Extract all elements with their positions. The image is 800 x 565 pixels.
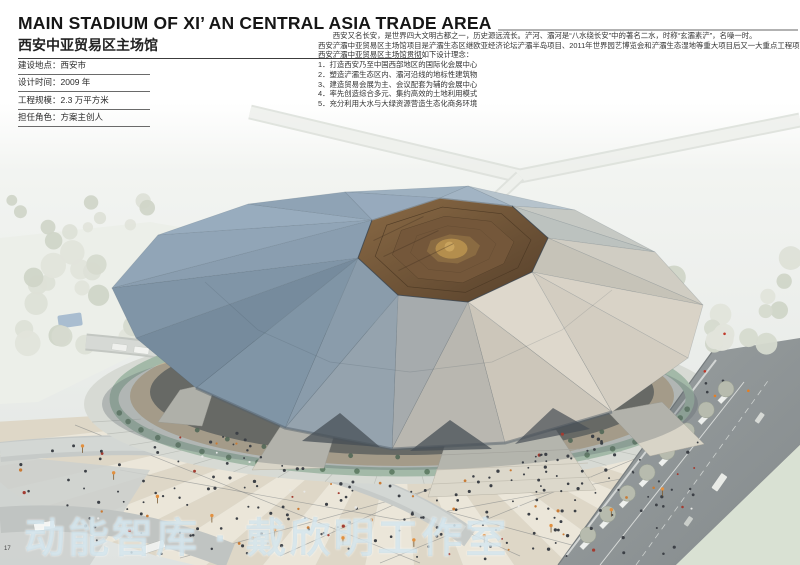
description-line: 西安又名长安，是世界四大文明古都之一，历史源远流长。浐河、灞河是“八水绕长安”中… — [318, 31, 798, 41]
info-value: 2009 年 — [61, 77, 91, 87]
watermark: 动能智库 · 戴欣明工作室 — [24, 504, 509, 564]
info-separator: ： — [52, 95, 61, 105]
info-label: 担任角色 — [18, 112, 52, 122]
description-line: 1．打造西安乃至中国西部地区的国际化会展中心 — [318, 60, 798, 70]
project-description: 西安又名长安，是世界四大文明古都之一，历史源远流长。浐河、灞河是“八水绕长安”中… — [318, 31, 798, 109]
info-separator: ： — [52, 112, 61, 122]
info-value: 2.3 万平方米 — [61, 95, 109, 105]
info-value: 西安市 — [61, 60, 87, 70]
info-label: 设计时间 — [18, 77, 52, 87]
info-row-design-time: 设计时间：2009 年 — [18, 75, 150, 93]
project-info: 建设地点：西安市 设计时间：2009 年 工程规模：2.3 万平方米 担任角色：… — [18, 57, 150, 127]
portfolio-page: MAIN STADIUM OF XI’ AN CENTRAL ASIA TRAD… — [0, 0, 800, 565]
description-line: 5．充分利用大水与大绿资源营造生态化商务环境 — [318, 99, 798, 109]
info-label: 建设地点 — [18, 60, 52, 70]
page-number: 17 — [4, 546, 11, 552]
description-line: 3、建造贸易会展为主、会议配套为辅的会展中心 — [318, 80, 798, 90]
info-row-location: 建设地点：西安市 — [18, 57, 150, 75]
description-line: 西安浐灞中亚贸易区主场馆贯彻如下设计理念： — [318, 50, 798, 60]
info-row-scale: 工程规模：2.3 万平方米 — [18, 92, 150, 110]
info-separator: ： — [52, 77, 61, 87]
info-separator: ： — [52, 60, 61, 70]
description-line: 4．率先创造综合多元、集约高效的土地利用模式 — [318, 89, 798, 99]
info-row-role: 担任角色：方案主创人 — [18, 110, 150, 128]
description-line: 西安浐灞中亚贸易区主场馆项目是浐灞生态区继欧亚经济论坛浐灞半岛项目、2011年世… — [318, 41, 798, 51]
info-value: 方案主创人 — [61, 112, 104, 122]
description-line: 2．塑造浐灞生态区内、灞河沿线的地标性建筑物 — [318, 70, 798, 80]
title-row: MAIN STADIUM OF XI’ AN CENTRAL ASIA TRAD… — [0, 0, 800, 34]
info-label: 工程规模 — [18, 95, 52, 105]
